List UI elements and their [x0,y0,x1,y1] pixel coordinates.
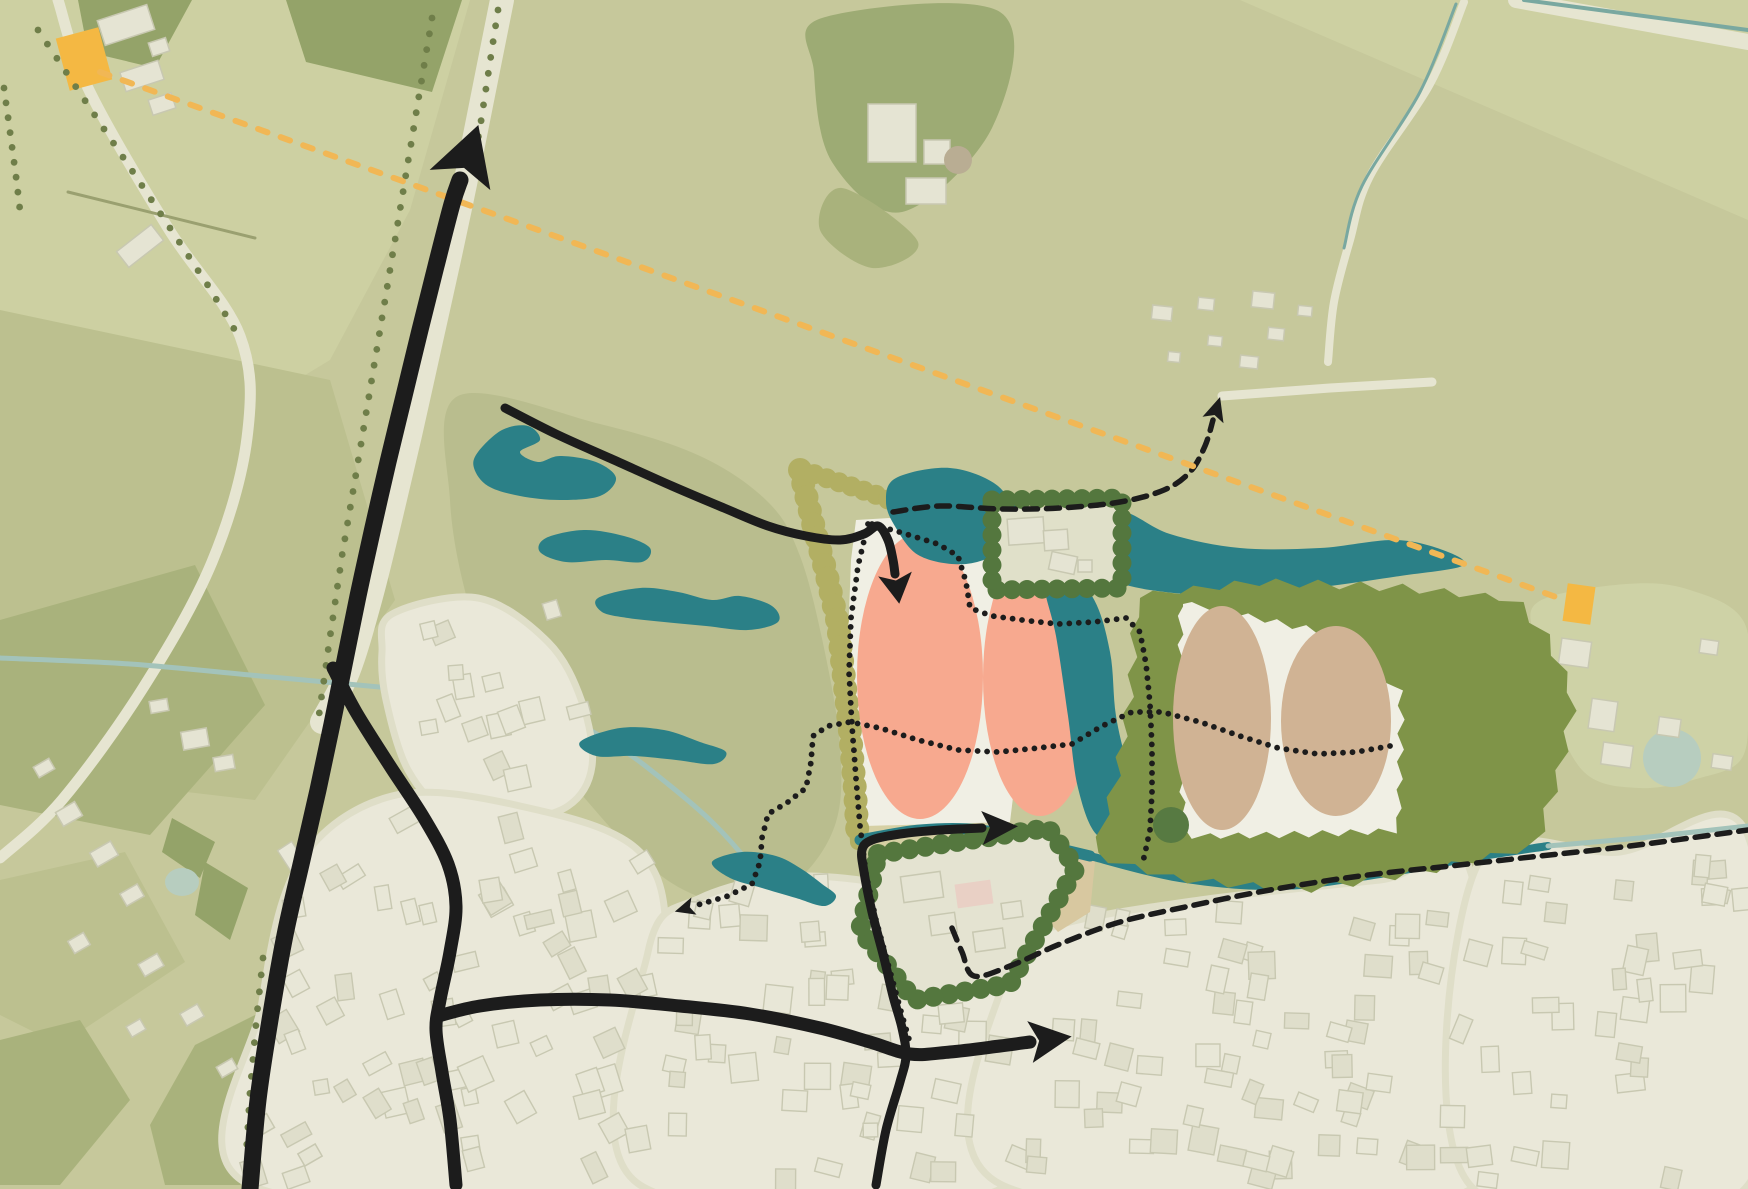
specimen-tree [1153,807,1189,843]
housing-phase-ellipse-d [1281,626,1391,816]
tree-north-farm [944,146,972,174]
farmstead-south-building-pink [955,880,994,909]
pond-east-farm [1643,729,1701,787]
landscape-masterplan-map [0,0,1748,1189]
masterplan-canvas [0,0,1748,1189]
landmark-building-east [1562,583,1595,625]
pond-west [165,868,199,896]
